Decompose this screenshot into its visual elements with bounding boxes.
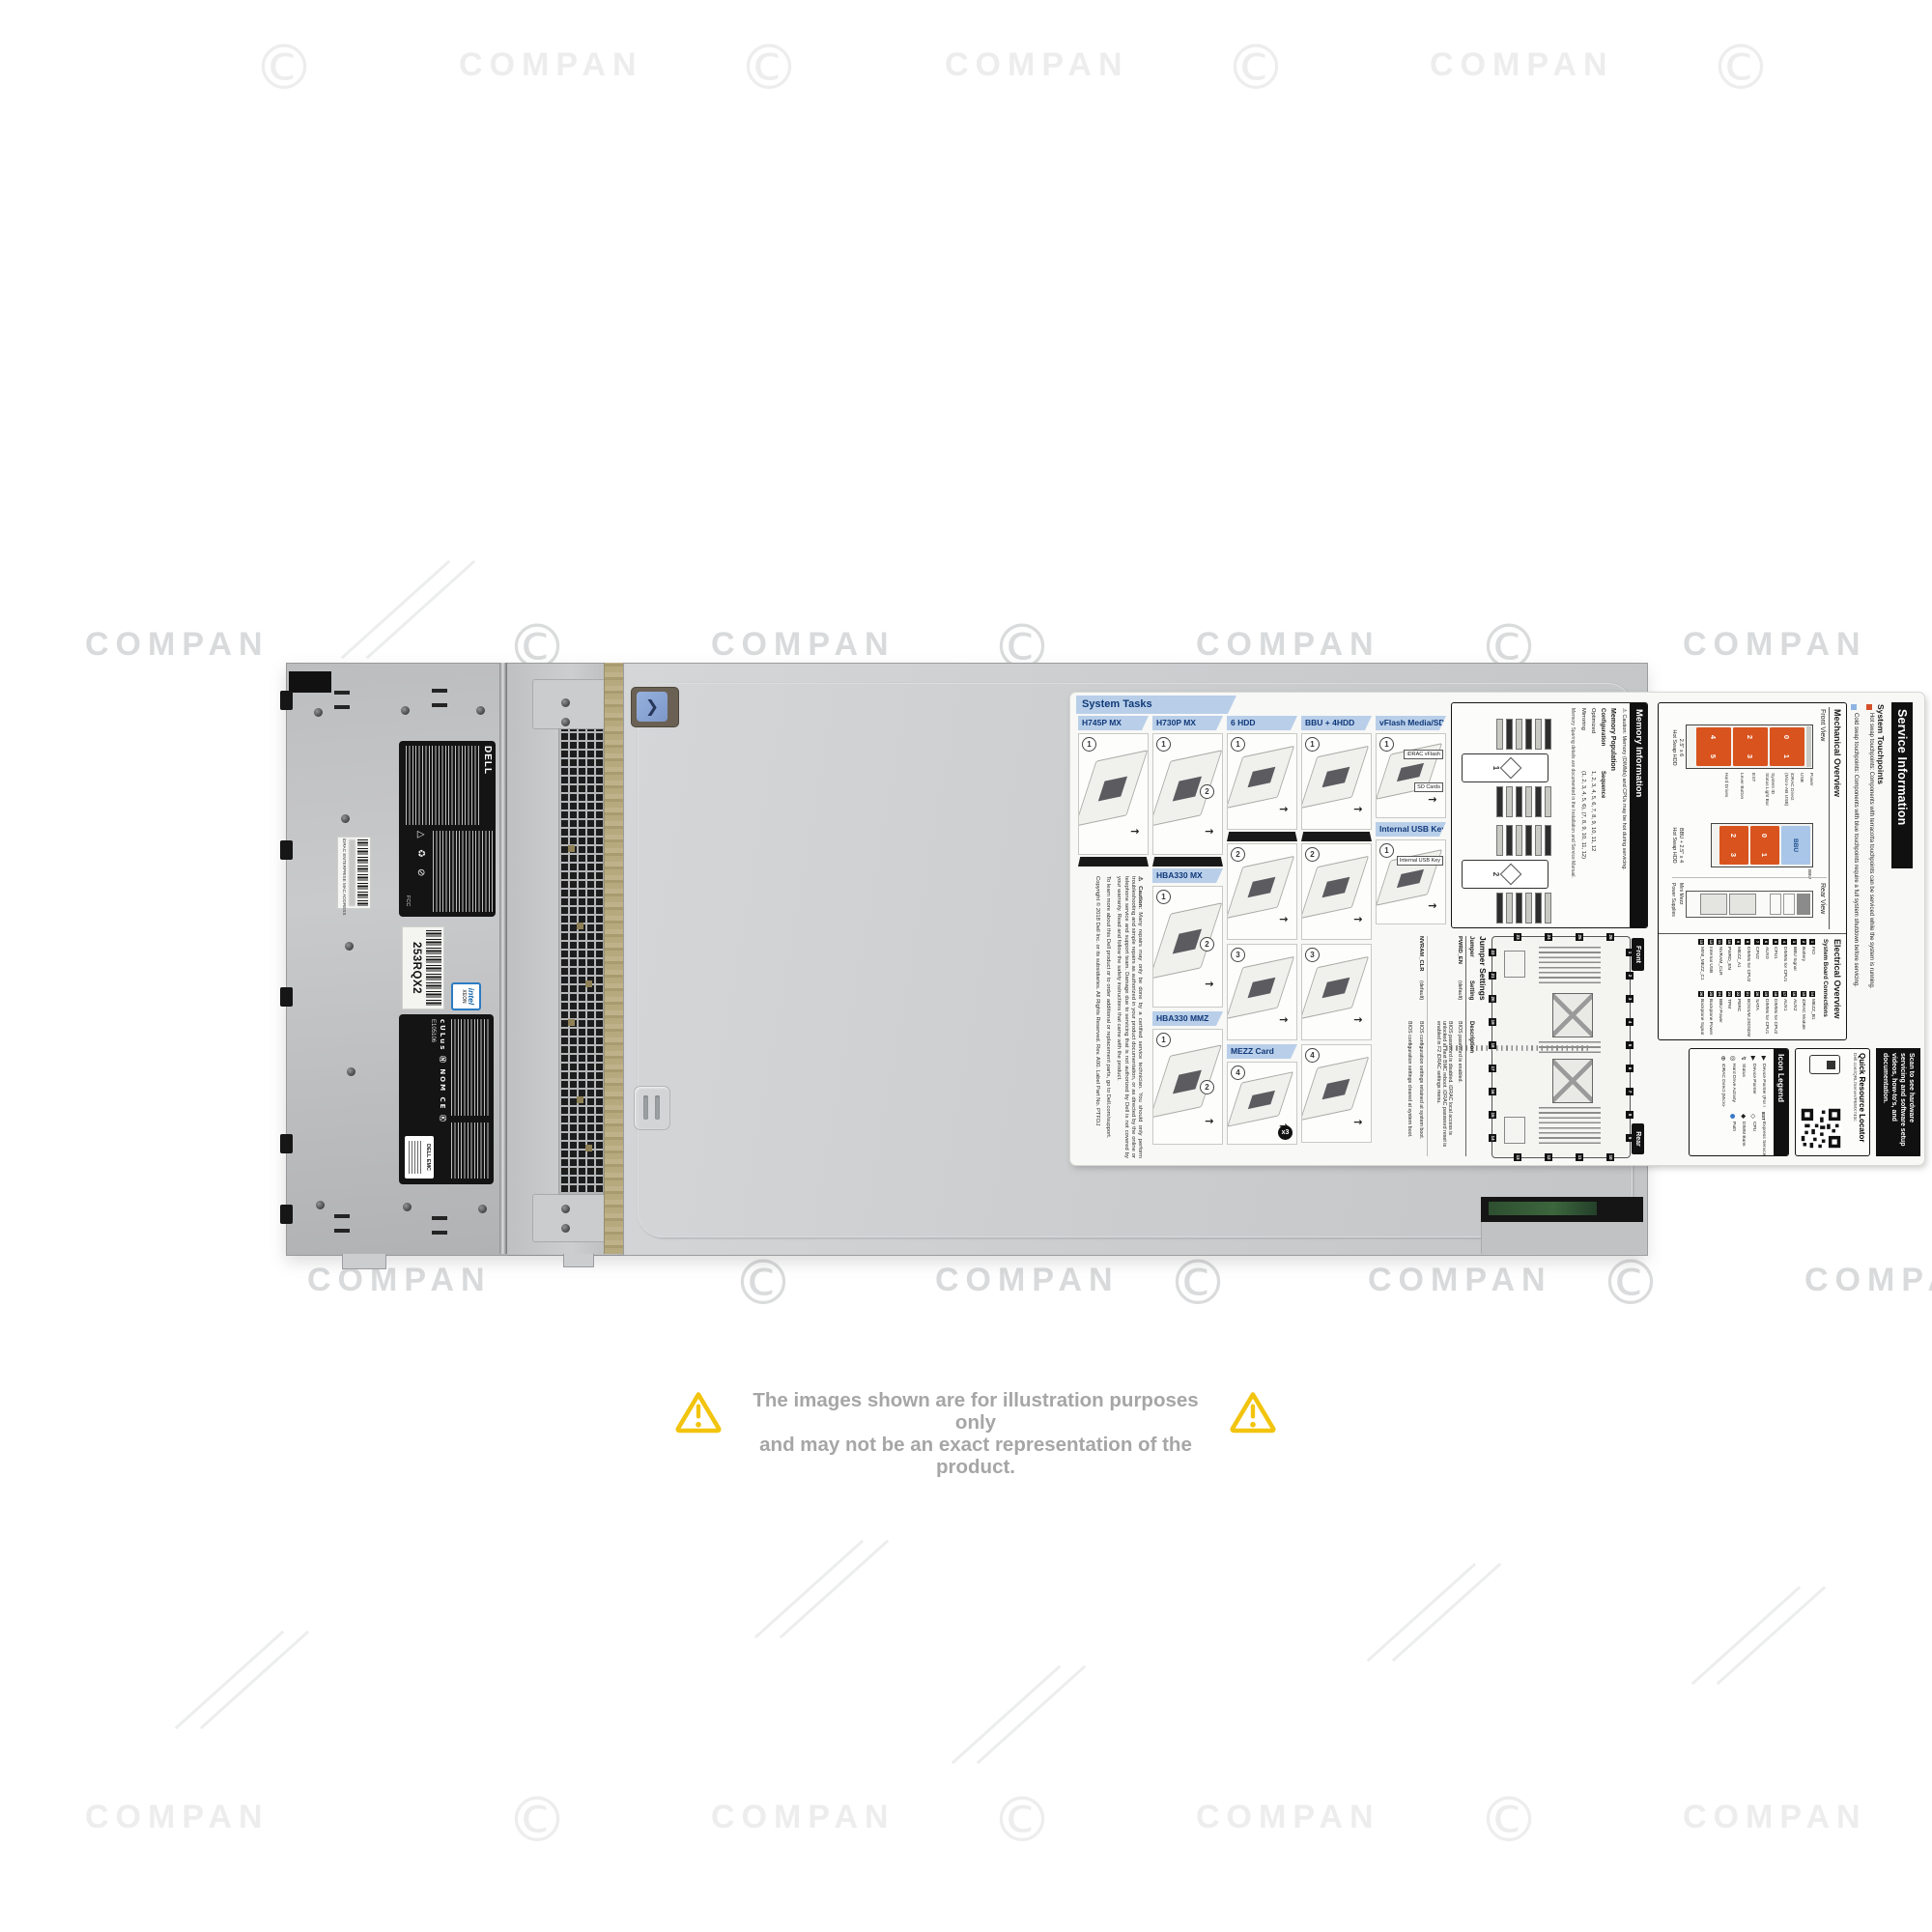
watermark-line	[366, 560, 475, 660]
connection-item: 10PWRD_EN	[1724, 939, 1734, 989]
ventilation-grid	[558, 728, 604, 1195]
board-callout: 17	[1489, 1065, 1496, 1072]
board-part	[1504, 1117, 1525, 1144]
connection-item: 18DIMMs for CPU2	[1771, 991, 1780, 1039]
legend-icon: ⊕	[1719, 1053, 1727, 1064]
panel-shadow-bar	[1152, 857, 1223, 867]
connection-name: DIMMs for CPU2	[1773, 999, 1777, 1034]
connection-item: 19DIMMs for CPU1	[1761, 991, 1771, 1039]
cover-step	[1481, 1222, 1646, 1254]
rear-label-2: Power Supplies	[1670, 883, 1676, 917]
icon-legend-title: Icon Legend	[1774, 1049, 1788, 1155]
screw	[561, 718, 570, 726]
watermark-logo: ©	[732, 1248, 794, 1320]
arrow-icon: →	[1205, 825, 1213, 838]
cover-release-latch: ❯	[631, 687, 679, 727]
watermark-text: COMPAN	[935, 1262, 1120, 1299]
legend-item: ⊕iDRAC Direct (Micro-AB USB)	[1719, 1053, 1729, 1107]
watermark-line	[754, 1540, 864, 1639]
dimm-slot	[1525, 719, 1532, 750]
latch-button: ❯	[637, 692, 668, 722]
mac-address-label: iDRAC ENTERPRISE MAC ADDRESS	[337, 837, 371, 909]
dimm-slot	[1545, 893, 1551, 923]
top-cover: ❯ System Tasks H745P MX→1⚠ Caution: Many…	[623, 663, 1648, 1256]
watermark-text: COMPAN	[1430, 46, 1614, 84]
vent-bracket-bottom	[532, 1194, 606, 1242]
chevron-right-icon: ❯	[645, 697, 659, 717]
board-callout: 19	[1489, 1018, 1496, 1026]
watermark-text: COMPAN	[307, 1262, 492, 1299]
screw	[561, 698, 570, 707]
disclaimer-line2: and may not be an exact representation o…	[730, 1434, 1221, 1478]
bbu-block: BBU	[1781, 826, 1810, 865]
vent-slots-emboss	[634, 1086, 670, 1130]
jumper-name-1: PWRD_EN	[1457, 936, 1463, 964]
intel-logo-text: intel	[467, 984, 476, 1009]
reg-model-label: cULus Ⓝ NOM CE Ⓚ E105106 DELL EMC	[399, 1014, 494, 1184]
watermark-line	[1367, 1563, 1476, 1662]
configuration-col: Configuration	[1600, 708, 1605, 746]
fv2-caption: BBU + 2.5" x 4Hot Swap HDD	[1671, 815, 1684, 875]
emi-gasket-strip	[604, 663, 625, 1254]
intel-xeon-sticker: intel XEON	[451, 982, 481, 1010]
fine-print-lines	[433, 831, 493, 912]
board-callout: 26	[1606, 933, 1614, 941]
connection-name: Internal USB	[1708, 947, 1713, 973]
vent-gold-cell	[577, 923, 583, 929]
screw	[316, 1201, 325, 1209]
metal-clip	[334, 691, 350, 709]
jumper-settings-title: Jumper Settings	[1478, 936, 1488, 1001]
connection-name: CPU1	[1773, 947, 1777, 959]
legend-item: ▶Device Pointer	[1748, 1053, 1759, 1107]
connection-item: 7CPU2	[1752, 939, 1762, 989]
legend-label: Device Pointer (For more direction)	[1761, 1064, 1766, 1107]
rear-view-label: Rear View	[1819, 883, 1826, 914]
step-number-badge: 1	[1156, 737, 1171, 752]
connection-item: 17AUX1	[1780, 991, 1790, 1039]
connection-item: 15iDRAC Module	[1799, 991, 1808, 1039]
connection-name: NVRAM_CLR	[1718, 947, 1722, 976]
drive-bay-pair: 45	[1696, 727, 1731, 766]
scan-to-see-box: Scan to see hardware servicing and softw…	[1876, 1048, 1920, 1156]
legend-label: iDRAC Direct (Micro-AB USB)	[1720, 1064, 1725, 1107]
drive-number: 1	[1761, 853, 1770, 857]
panel-shadow-bar	[1227, 832, 1297, 841]
drive-number: 5	[1710, 754, 1719, 758]
dell-emc-box: DELL EMC	[405, 1136, 434, 1179]
task-panel-header: 6 HDD	[1227, 716, 1297, 730]
arrow-icon: →	[1279, 1013, 1288, 1026]
qrl-title: Quick Resource Locator	[1858, 1053, 1866, 1151]
step-number-badge: 2	[1200, 1080, 1214, 1094]
panel-shadow-bar	[1301, 832, 1372, 841]
step-number-badge: 2	[1200, 937, 1214, 952]
dimm-slot	[1506, 893, 1513, 923]
connection-item: 6AUX0	[1761, 939, 1771, 989]
vent-gold-cell	[568, 845, 575, 852]
connection-name: BOSS/M.2/IDSDM	[1746, 999, 1750, 1037]
task-panel-header: BBU + 4HDD	[1301, 716, 1372, 730]
fv1-caption-2: Hot Swap HDD	[1671, 719, 1678, 777]
jumper-name-2: NVRAM_CLR	[1418, 936, 1424, 971]
legend-icon: EST	[1761, 1111, 1766, 1122]
jumper-setting-2a: (default)	[1418, 980, 1424, 1000]
connection-item: 3BBU Signal	[1789, 939, 1799, 989]
watermark-line	[977, 1665, 1086, 1765]
watermark-logo: ©	[991, 1785, 1053, 1857]
connection-name: Battery	[1801, 947, 1805, 961]
board-callout: 14	[1489, 1134, 1496, 1142]
dell-emc-text: DELL EMC	[425, 1136, 431, 1179]
watermark-text: COMPAN	[1196, 1799, 1380, 1836]
vent-gold-cell	[577, 1096, 583, 1103]
legend-item: ↯Status	[1739, 1053, 1749, 1107]
drive-latch-tab	[280, 987, 293, 1007]
mech-callout: Hard Drives	[1723, 773, 1728, 797]
task-panel: →4x3	[1227, 1062, 1297, 1145]
watermark-text: COMPAN	[85, 626, 270, 664]
divider	[1465, 936, 1466, 1156]
task-panel: →2	[1227, 843, 1297, 940]
arrow-icon: →	[1130, 825, 1139, 838]
barcode	[357, 839, 368, 906]
screw	[561, 1205, 570, 1213]
cpu-box: 1	[1462, 753, 1548, 782]
cpu-box: 2	[1462, 860, 1548, 889]
port-block	[1783, 894, 1795, 915]
connection-name: MINI_MEZZ_C1	[1699, 947, 1704, 980]
psu-block	[1700, 894, 1727, 915]
connection-item: 26Backplane Signal	[1696, 991, 1706, 1039]
legend-item: ●Path	[1728, 1111, 1739, 1155]
quick-resource-locator-box: Quick Resource Locator Dell.com/QRL/Serv…	[1795, 1048, 1870, 1156]
mechanical-overview-title: Mechanical Overview	[1833, 709, 1842, 797]
jumper-desc-1a: BIOS password is enabled.	[1457, 1021, 1463, 1156]
connection-name: PERC	[1736, 999, 1741, 1011]
regulatory-label: DELL △ ♻ ⊘ FCC	[399, 741, 496, 917]
connection-item: 2Battery	[1799, 939, 1808, 989]
board-callout: 9	[1626, 1134, 1634, 1142]
task-panel: →3	[1227, 944, 1297, 1040]
mech-callout: (Micro-AB USB)	[1783, 773, 1788, 806]
cold-swap-text: Cold swap touchpoints: Components with b…	[1852, 713, 1859, 1032]
legend-label: Express Service Tag	[1761, 1122, 1766, 1155]
connection-number: 8	[1745, 939, 1750, 945]
board-callout: 12	[1545, 1153, 1552, 1161]
watermark-text: COMPAN	[459, 46, 643, 84]
connection-item: 11NVRAM_CLR	[1715, 939, 1724, 989]
connection-name: DIMMs for CPU1	[1782, 947, 1787, 981]
board-part	[1504, 951, 1525, 978]
board-callout: 11	[1576, 1153, 1583, 1161]
electrical-overview-title: Electrical Overview	[1833, 939, 1842, 1019]
step-number-badge: 4	[1231, 1065, 1245, 1080]
psu-block	[1729, 894, 1756, 915]
cold-swap-bullet-icon	[1851, 704, 1857, 710]
drive-number: 0	[1761, 834, 1770, 838]
task-panel-header: HBA330 MMZ	[1152, 1011, 1223, 1026]
certification-marks: cULus Ⓝ NOM CE Ⓚ	[438, 1019, 447, 1123]
task-panel: →1	[1301, 733, 1372, 830]
task-panel-header: HBA330 MX	[1152, 868, 1223, 883]
arrow-icon: →	[1279, 803, 1288, 815]
task-panel: →1	[1078, 733, 1149, 855]
dimm-cluster	[1539, 1107, 1601, 1146]
connection-name: SATA	[1754, 999, 1759, 1010]
watermark-line	[1691, 1586, 1801, 1686]
drive-bay-pair: 01	[1770, 727, 1804, 766]
arrow-icon: →	[1205, 978, 1213, 990]
cfg-row2: Mirroring	[1580, 708, 1586, 730]
redacted-band	[349, 839, 355, 906]
drive-latch-tab	[280, 1205, 293, 1224]
board-callout: 1	[1626, 949, 1634, 956]
hot-swap-bullet-icon	[1866, 704, 1872, 710]
screw	[345, 942, 354, 951]
legend-item: ◎Hard Drive Activity	[1728, 1053, 1739, 1107]
fine-print-lines	[451, 1019, 490, 1116]
dimm-slot	[1535, 893, 1542, 923]
connection-name: FIO	[1810, 947, 1815, 954]
dimm-slot	[1506, 719, 1513, 750]
server-chassis: DELL △ ♻ ⊘ FCC iDRAC ENTERPRISE MAC ADDR…	[286, 663, 1646, 1254]
task-panel-header: MEZZ Card	[1227, 1044, 1297, 1059]
divider	[1659, 933, 1846, 934]
icon-legend-col2: ESTExpress Service Tag◇CPU◆DIMM Bank●Pat…	[1728, 1111, 1769, 1155]
task-panel: →3	[1301, 944, 1372, 1040]
divider	[1672, 877, 1827, 878]
legend-item: ◆DIMM Bank	[1739, 1111, 1749, 1155]
legend-label: Status	[1741, 1064, 1746, 1077]
connection-name: MEZZ_B1	[1810, 999, 1815, 1020]
connection-name: MEZZ_A1	[1736, 947, 1741, 968]
legend-icon: ▶	[1749, 1053, 1757, 1064]
task-panel: →12	[1152, 886, 1223, 1008]
dimm-slot	[1496, 893, 1503, 923]
step-number-badge: 2	[1305, 847, 1320, 862]
jumper-desc-2b: BIOS configuration settings cleared at s…	[1406, 1021, 1412, 1156]
sequence-col: Sequence	[1600, 771, 1605, 798]
connection-number: 24	[1717, 991, 1722, 997]
memory-population-title: Memory Population	[1609, 708, 1616, 771]
watermark-logo: ©	[1710, 33, 1772, 104]
connection-item: 20SATA	[1752, 991, 1762, 1039]
arrow-icon: →	[1353, 803, 1362, 815]
mech-callout: EST	[1750, 773, 1755, 781]
dimm-slot	[1535, 825, 1542, 856]
dimm-bank	[1493, 786, 1554, 817]
legend-icon: ◇	[1749, 1111, 1757, 1122]
legend-icon: ●	[1729, 1111, 1737, 1122]
board-callout: 10	[1606, 1153, 1614, 1161]
dimm-slot	[1525, 893, 1532, 923]
watermark-text: COMPAN	[711, 1799, 895, 1836]
seq-row2: (1, 2, 3, 4, 5, 6), (7, 8, 9, 10, 11, 12…	[1580, 771, 1586, 859]
dimm-cluster	[1539, 947, 1601, 985]
dimm-bank	[1493, 719, 1554, 750]
hot-swap-text: Hot swap touchpoints: Components with te…	[1867, 713, 1874, 1032]
memory-note: Memory Sparing details are documented in…	[1570, 708, 1576, 923]
step-number-badge: 4	[1305, 1048, 1320, 1063]
connection-number: 23	[1726, 991, 1732, 997]
dimm-bank	[1493, 893, 1554, 923]
caution-note: ⚠ Caution: Many repairs may only be done…	[1081, 876, 1143, 1158]
icon-legend-col1: ▶Device Pointer (For more direction)▶Dev…	[1719, 1053, 1770, 1107]
drive-number: 3	[1730, 853, 1739, 857]
divider	[1427, 936, 1428, 1156]
memory-information-title: Memory Information	[1630, 703, 1647, 927]
watermark-logo: ©	[1225, 33, 1287, 104]
phone-icon	[1809, 1055, 1840, 1074]
cfg-row1: Optimized	[1590, 708, 1596, 733]
watermark-line	[1717, 1586, 1826, 1686]
legend-label: Hard Drive Activity	[1731, 1064, 1736, 1102]
watermark-logo: ©	[1478, 1785, 1540, 1857]
watermark-text: COMPAN	[1683, 1799, 1867, 1836]
front-view-6hdd-diagram: 012345	[1686, 724, 1813, 769]
board-callout: 5	[1626, 1041, 1634, 1049]
legend-icon: ◎	[1729, 1053, 1737, 1064]
connection-number: 13	[1698, 939, 1704, 945]
caution-text: ⚠ Caution: Many repairs may only be done…	[1081, 876, 1143, 1158]
barcode	[426, 930, 441, 1006]
watermark-text: COMPAN	[1804, 1262, 1932, 1299]
screw	[476, 706, 485, 715]
watermark-line	[780, 1540, 889, 1639]
disclaimer-line1: The images shown are for illustration pu…	[730, 1389, 1221, 1434]
seq-row1: 1, 2, 3, 4, 5, 6, 7, 8, 9, 10, 11, 12	[1590, 771, 1596, 851]
cpu-number: 1	[1492, 766, 1500, 770]
screw	[341, 814, 350, 823]
vent-gold-cell	[568, 1019, 575, 1026]
fine-print-lines	[406, 746, 479, 825]
arrow-icon: →	[1205, 1115, 1213, 1127]
system-board-diagram: 1234567891011121322212019181716151426252…	[1492, 936, 1631, 1158]
connection-number: 7	[1754, 939, 1760, 945]
vent-gold-cell	[585, 1145, 592, 1151]
dimm-slot	[1525, 825, 1532, 856]
board-callout: 2	[1626, 972, 1634, 980]
task-panel-header: H730P MX	[1152, 716, 1223, 730]
mini-mezz-block	[1797, 894, 1810, 915]
service-card-upright: Service Information System Touchpoints H…	[1378, 693, 1924, 1165]
drive-number: 2	[1747, 735, 1755, 739]
board-callout: 3	[1626, 995, 1634, 1003]
connection-number: 17	[1781, 991, 1787, 997]
divider	[1829, 707, 1830, 929]
connection-number: 14	[1809, 991, 1815, 997]
connection-name: BBU Power	[1718, 999, 1722, 1023]
dimm-slot	[1516, 893, 1522, 923]
step-number-badge: 1	[1305, 737, 1320, 752]
front-view-bbu-diagram: BBU0123	[1711, 823, 1813, 867]
drive-number: 3	[1747, 754, 1755, 758]
legend-label: DIMM Bank	[1741, 1122, 1746, 1147]
watermark-line	[1392, 1563, 1501, 1662]
connection-name: AUX2	[1792, 999, 1797, 1011]
rear-view-diagram	[1686, 891, 1813, 918]
watermark-text: COMPAN	[711, 626, 895, 664]
connection-item: 22PERC	[1734, 991, 1744, 1039]
watermark-line	[341, 560, 450, 660]
task-panel: →12	[1152, 1029, 1223, 1145]
board-callout: 7	[1626, 1088, 1634, 1095]
overview-box: Mechanical Overview Front View 012345 2.…	[1658, 702, 1847, 1040]
step-number-badge: 1	[1156, 1033, 1171, 1047]
step-number-badge: 1	[1082, 737, 1096, 752]
dell-logo-text: DELL	[482, 746, 493, 775]
watermark-logo: ©	[738, 33, 800, 104]
connection-number: 10	[1726, 939, 1732, 945]
task-panel: →2	[1301, 843, 1372, 940]
connection-item: 1FIO	[1807, 939, 1817, 989]
watermark-text: COMPAN	[945, 46, 1129, 84]
drive-bay-pair: 01	[1750, 826, 1779, 865]
task-panel: →12	[1152, 733, 1223, 855]
connection-item: 23TPM	[1724, 991, 1734, 1039]
task-panel: →4	[1301, 1044, 1372, 1143]
connection-name: PWRD_EN	[1726, 947, 1731, 970]
vent-gold-cell	[585, 980, 592, 987]
fv1-caption: 2.5" x 6Hot Swap HDD	[1671, 719, 1684, 777]
slot	[643, 1095, 648, 1120]
dimm-slot	[1496, 825, 1503, 856]
metal-clip	[432, 689, 447, 707]
connections-col1: 1FIO2Battery3BBU Signal4DIMMs for CPU15C…	[1696, 939, 1817, 989]
fine-print-lines	[451, 1122, 490, 1179]
connection-number: 16	[1791, 991, 1797, 997]
cpu-diamond-icon	[1500, 864, 1522, 886]
slot	[655, 1095, 660, 1120]
dimm-slot	[1506, 786, 1513, 817]
panel-shadow-bar	[1078, 857, 1149, 867]
watermark-line	[200, 1631, 309, 1730]
connection-name: DIMMs for CPU2	[1746, 947, 1750, 981]
drive-number: 0	[1783, 735, 1792, 739]
task-panel: →1	[1227, 733, 1297, 830]
front-view-label: Front View	[1819, 709, 1826, 741]
board-callout: 13	[1514, 1153, 1521, 1161]
drive-latch-tab	[280, 691, 293, 710]
jumper-setting-1a: (default)	[1457, 980, 1463, 1000]
dimm-bank	[1493, 825, 1554, 856]
arrow-icon: →	[1353, 1013, 1362, 1026]
connection-number: 15	[1801, 991, 1806, 997]
cpu-diamond-icon	[1500, 757, 1522, 780]
dimm-slot	[1525, 786, 1532, 817]
connection-number: 22	[1735, 991, 1741, 997]
mech-callout: System ID	[1770, 773, 1775, 794]
legend-item: ▶Device Pointer (For more direction)	[1759, 1053, 1770, 1107]
connection-name: iDRAC Module	[1801, 999, 1805, 1030]
watermark-logo: ©	[506, 1785, 568, 1857]
board-callout: 25	[1576, 933, 1583, 941]
board-callout: 16	[1489, 1088, 1496, 1095]
step-number-badge: 3	[1231, 948, 1245, 962]
watermark-line	[175, 1631, 284, 1730]
regulatory-icons: △ ♻ ⊘	[415, 831, 426, 880]
mech-callout: iDRAC Direct	[1789, 773, 1794, 801]
backplane-pcb-sliver	[1489, 1202, 1597, 1215]
jumper-col: Jumper	[1468, 936, 1474, 957]
connection-number: 9	[1735, 939, 1741, 945]
legend-icon: ◆	[1740, 1111, 1747, 1122]
board-callout: 6	[1626, 1065, 1634, 1072]
dimm-slot	[1535, 719, 1542, 750]
mech-callout: Status Light Bar	[1764, 773, 1769, 806]
legend-label: CPU	[1751, 1122, 1756, 1131]
